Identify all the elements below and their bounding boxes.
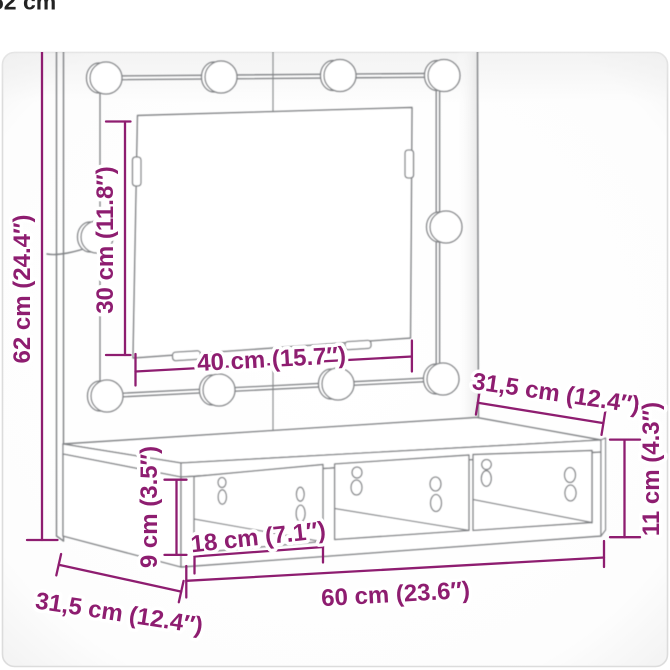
svg-text:30 cm (11.8″): 30 cm (11.8″)	[92, 166, 119, 314]
svg-text:9 cm (3.5″): 9 cm (3.5″)	[136, 446, 163, 568]
svg-text:62 cm (24.4″): 62 cm (24.4″)	[9, 215, 36, 364]
svg-text:62 cm: 62 cm	[0, 0, 56, 15]
svg-text:11 cm (4.3″): 11 cm (4.3″)	[638, 402, 665, 536]
